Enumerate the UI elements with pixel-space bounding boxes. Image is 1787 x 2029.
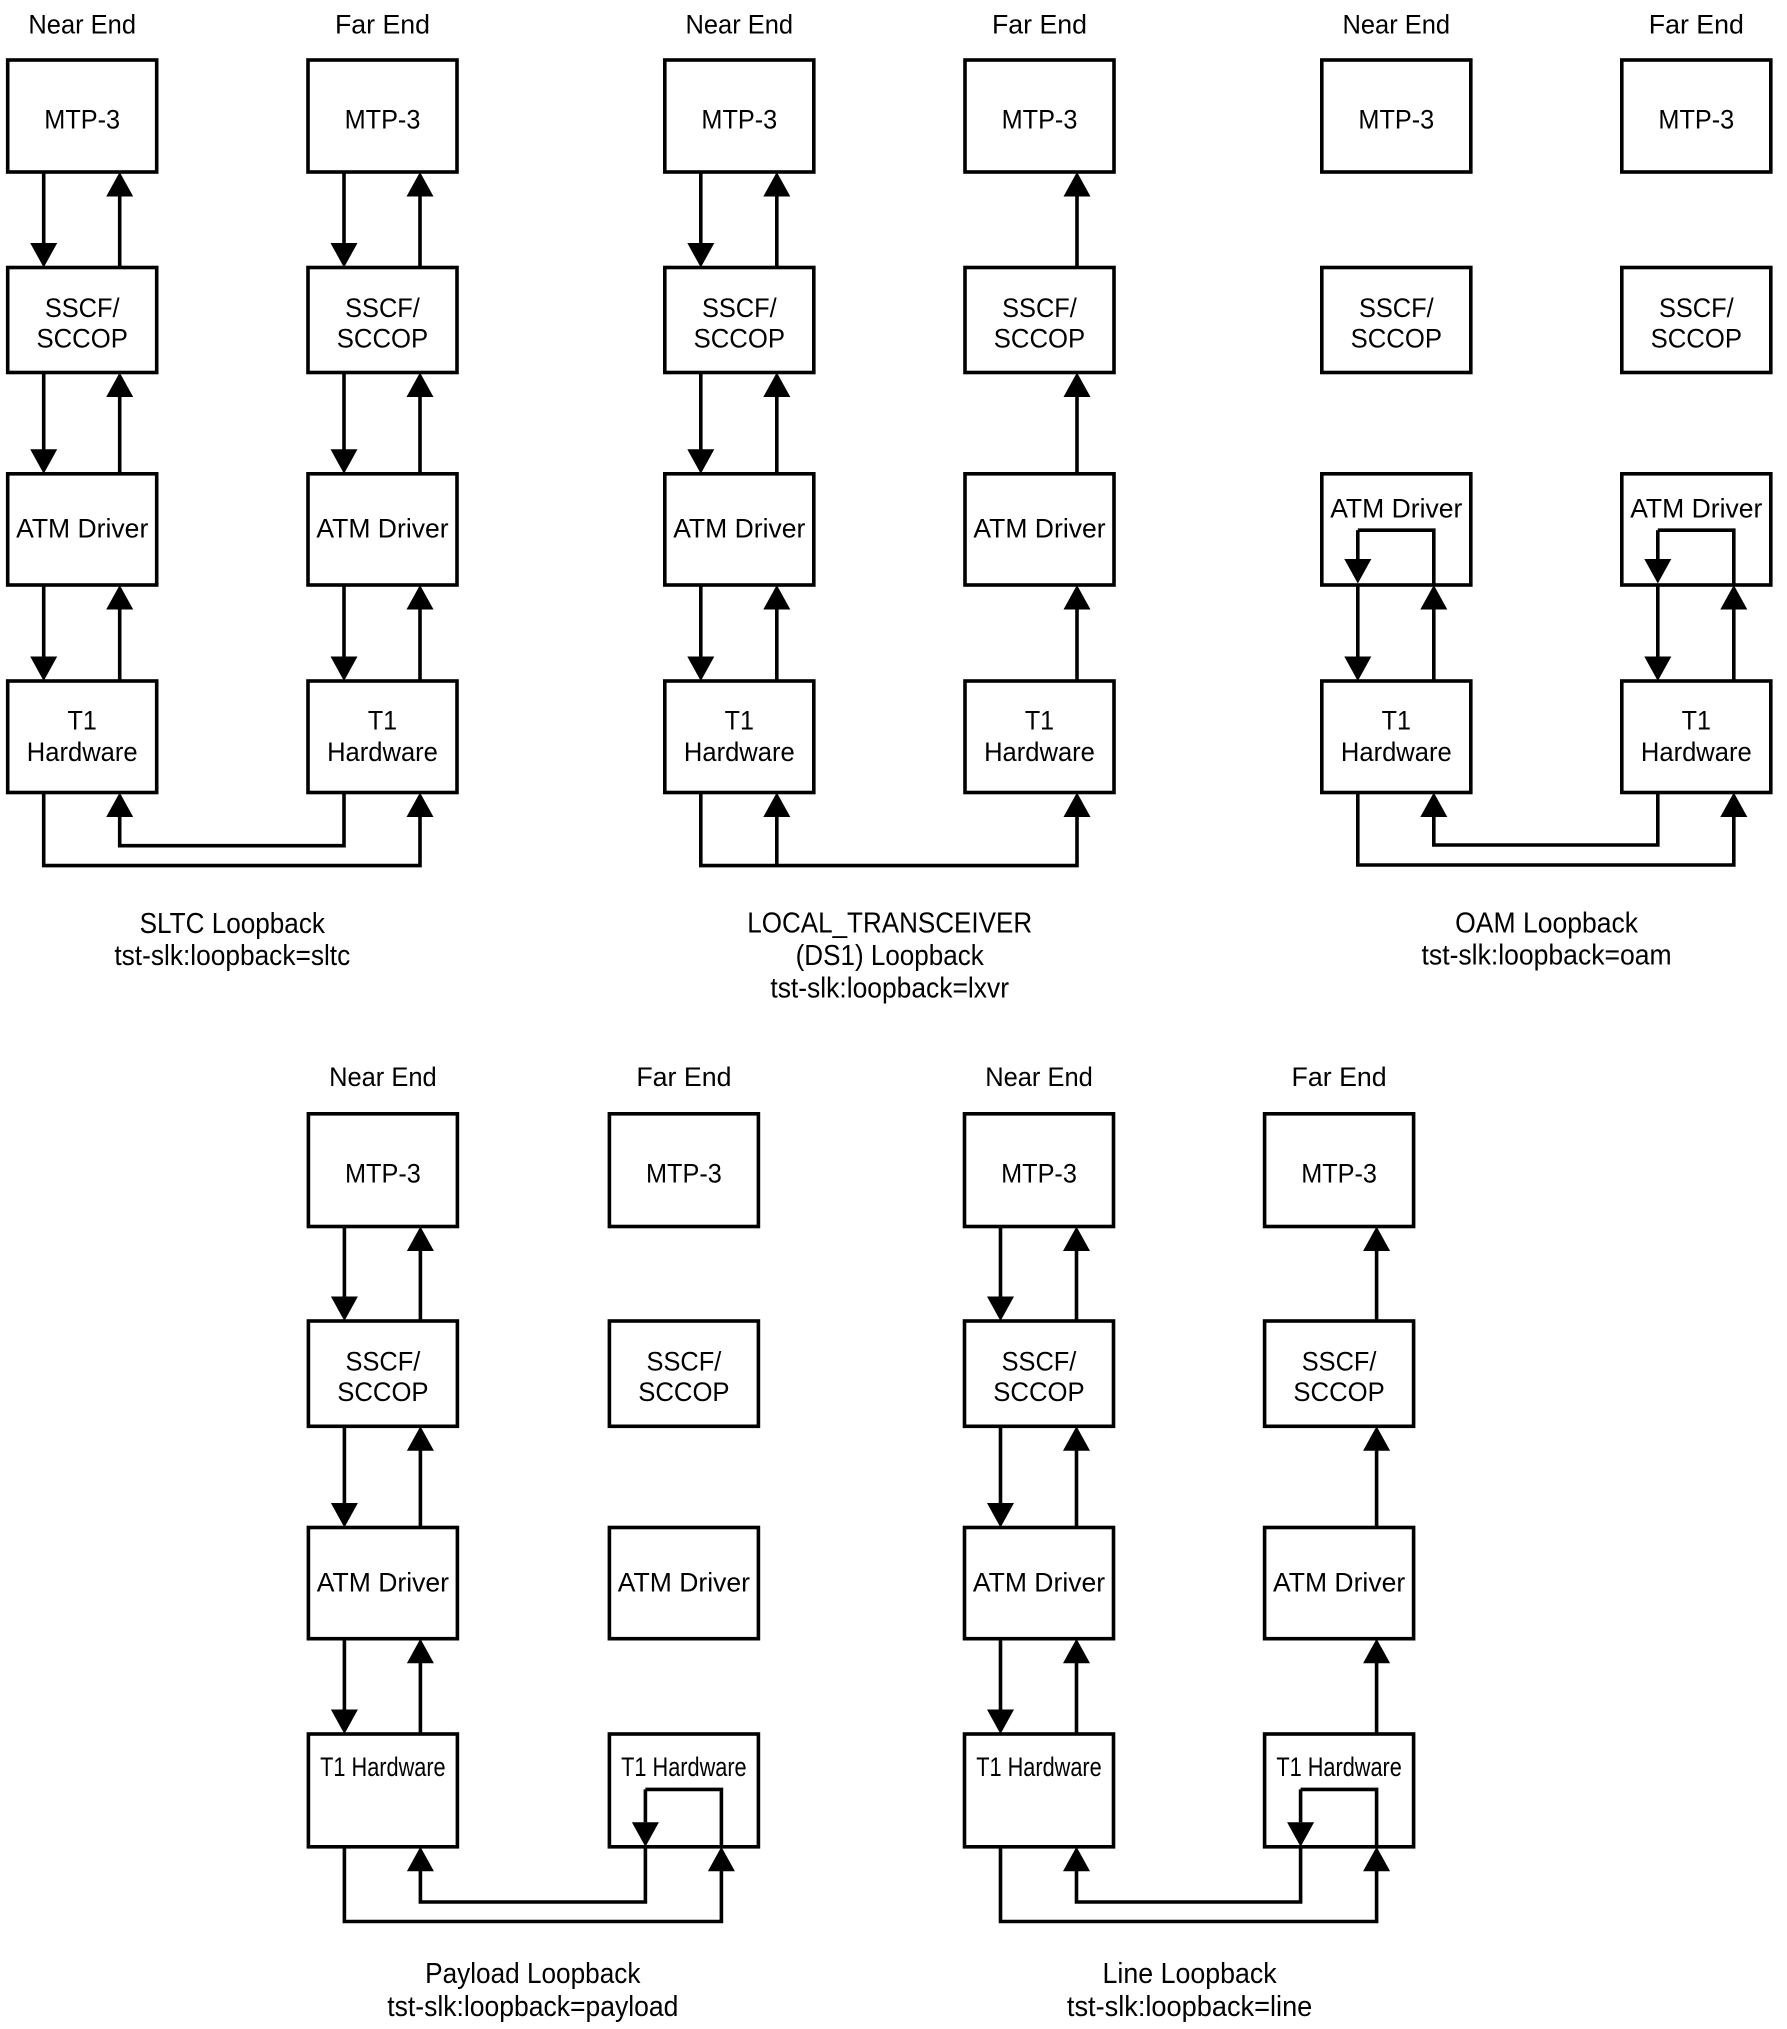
svg-text:MTP-3: MTP-3 bbox=[44, 105, 120, 135]
svg-text:SSCF/: SSCF/ bbox=[1002, 1347, 1077, 1377]
svg-text:SSCF/: SSCF/ bbox=[1302, 1347, 1377, 1377]
svg-text:MTP-3: MTP-3 bbox=[345, 105, 421, 135]
svg-text:ATM Driver: ATM Driver bbox=[1273, 1567, 1405, 1597]
svg-text:MTP-3: MTP-3 bbox=[1358, 105, 1434, 135]
svg-text:SSCF/: SSCF/ bbox=[346, 1347, 421, 1377]
svg-text:T1: T1 bbox=[1382, 705, 1411, 735]
svg-text:ATM Driver: ATM Driver bbox=[1330, 494, 1462, 524]
svg-text:Payload Loopback: Payload Loopback bbox=[425, 1958, 641, 1990]
svg-text:SCCOP: SCCOP bbox=[1293, 1377, 1384, 1407]
svg-text:Hardware: Hardware bbox=[684, 737, 795, 767]
svg-text:Far End: Far End bbox=[1649, 10, 1744, 40]
svg-text:SCCOP: SCCOP bbox=[337, 323, 428, 353]
svg-text:Hardware: Hardware bbox=[984, 737, 1095, 767]
svg-text:T1 Hardware: T1 Hardware bbox=[621, 1752, 747, 1782]
svg-text:SSCF/: SSCF/ bbox=[345, 293, 420, 323]
svg-text:T1: T1 bbox=[725, 705, 754, 735]
svg-text:ATM Driver: ATM Driver bbox=[973, 1567, 1105, 1597]
svg-text:SCCOP: SCCOP bbox=[994, 323, 1085, 353]
svg-text:SLTC Loopback: SLTC Loopback bbox=[140, 908, 326, 940]
svg-text:Near End: Near End bbox=[686, 10, 794, 40]
svg-text:MTP-3: MTP-3 bbox=[701, 105, 777, 135]
svg-text:ATM Driver: ATM Driver bbox=[618, 1567, 750, 1597]
svg-text:Far End: Far End bbox=[1292, 1062, 1387, 1092]
svg-text:SCCOP: SCCOP bbox=[1651, 323, 1742, 353]
svg-text:Far End: Far End bbox=[335, 10, 430, 40]
svg-text:(DS1) Loopback: (DS1) Loopback bbox=[796, 940, 985, 972]
svg-text:ATM Driver: ATM Driver bbox=[16, 514, 148, 544]
svg-text:Hardware: Hardware bbox=[1341, 737, 1452, 767]
svg-text:SCCOP: SCCOP bbox=[337, 1377, 428, 1407]
svg-text:MTP-3: MTP-3 bbox=[1001, 1158, 1077, 1188]
svg-text:Far End: Far End bbox=[636, 1062, 731, 1092]
svg-text:SSCF/: SSCF/ bbox=[1659, 293, 1734, 323]
svg-text:Near End: Near End bbox=[28, 10, 136, 40]
svg-text:MTP-3: MTP-3 bbox=[345, 1158, 421, 1188]
svg-text:SCCOP: SCCOP bbox=[638, 1377, 729, 1407]
svg-text:Line Loopback: Line Loopback bbox=[1103, 1958, 1278, 1990]
svg-text:Far End: Far End bbox=[992, 10, 1087, 40]
svg-text:T1: T1 bbox=[1025, 705, 1054, 735]
svg-text:ATM Driver: ATM Driver bbox=[316, 514, 448, 544]
svg-text:SSCF/: SSCF/ bbox=[702, 293, 777, 323]
svg-text:Near End: Near End bbox=[329, 1062, 437, 1092]
svg-text:ATM Driver: ATM Driver bbox=[673, 514, 805, 544]
svg-text:SCCOP: SCCOP bbox=[993, 1377, 1084, 1407]
svg-text:SSCF/: SSCF/ bbox=[1359, 293, 1434, 323]
svg-text:SSCF/: SSCF/ bbox=[1002, 293, 1077, 323]
svg-text:LOCAL_TRANSCEIVER: LOCAL_TRANSCEIVER bbox=[747, 908, 1032, 940]
svg-text:Hardware: Hardware bbox=[327, 737, 438, 767]
svg-text:MTP-3: MTP-3 bbox=[1301, 1158, 1377, 1188]
svg-text:Near End: Near End bbox=[1343, 10, 1451, 40]
svg-text:OAM Loopback: OAM Loopback bbox=[1455, 907, 1638, 939]
svg-text:SSCF/: SSCF/ bbox=[45, 293, 120, 323]
svg-text:MTP-3: MTP-3 bbox=[1002, 105, 1078, 135]
svg-text:tst-slk:loopback=oam: tst-slk:loopback=oam bbox=[1422, 940, 1672, 972]
svg-text:T1: T1 bbox=[1682, 705, 1711, 735]
svg-text:T1: T1 bbox=[368, 705, 397, 735]
svg-text:SCCOP: SCCOP bbox=[36, 323, 127, 353]
svg-text:MTP-3: MTP-3 bbox=[1658, 105, 1734, 135]
svg-text:ATM Driver: ATM Driver bbox=[1630, 494, 1762, 524]
svg-text:tst-slk:loopback=sltc: tst-slk:loopback=sltc bbox=[114, 940, 350, 972]
svg-text:T1 Hardware: T1 Hardware bbox=[1276, 1752, 1402, 1782]
svg-text:T1: T1 bbox=[68, 705, 97, 735]
svg-text:MTP-3: MTP-3 bbox=[646, 1158, 722, 1188]
svg-text:ATM Driver: ATM Driver bbox=[973, 514, 1105, 544]
svg-text:SSCF/: SSCF/ bbox=[647, 1347, 722, 1377]
svg-text:ATM Driver: ATM Driver bbox=[317, 1567, 449, 1597]
svg-text:Near End: Near End bbox=[985, 1062, 1093, 1092]
svg-text:T1 Hardware: T1 Hardware bbox=[976, 1752, 1102, 1782]
svg-text:tst-slk:loopback=payload: tst-slk:loopback=payload bbox=[387, 1991, 678, 2023]
svg-text:SCCOP: SCCOP bbox=[694, 323, 785, 353]
svg-text:tst-slk:loopback=line: tst-slk:loopback=line bbox=[1067, 1991, 1312, 2023]
svg-text:SCCOP: SCCOP bbox=[1351, 323, 1442, 353]
svg-text:tst-slk:loopback=lxvr: tst-slk:loopback=lxvr bbox=[770, 973, 1009, 1005]
svg-text:T1 Hardware: T1 Hardware bbox=[320, 1752, 446, 1782]
svg-text:Hardware: Hardware bbox=[1641, 737, 1752, 767]
svg-text:Hardware: Hardware bbox=[27, 737, 138, 767]
